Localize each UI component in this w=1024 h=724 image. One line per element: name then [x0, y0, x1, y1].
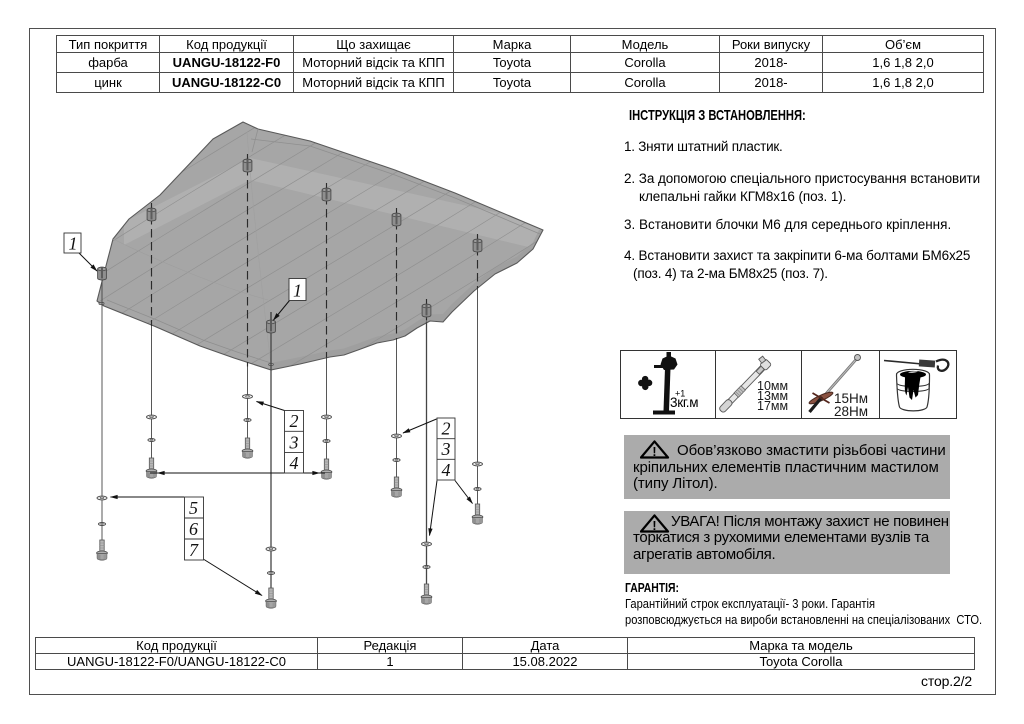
svg-text:3: 3 — [289, 432, 299, 452]
svg-text:+1: +1 — [675, 389, 685, 399]
svg-text:28Нм: 28Нм — [834, 404, 868, 419]
svg-text:4: 4 — [290, 453, 299, 473]
svg-text:5: 5 — [189, 498, 198, 518]
svg-text:6: 6 — [189, 519, 198, 539]
svg-text:1: 1 — [293, 281, 302, 301]
svg-text:2: 2 — [442, 419, 451, 439]
svg-text:1: 1 — [69, 234, 78, 254]
svg-text:17мм: 17мм — [757, 399, 788, 413]
svg-text:2: 2 — [290, 411, 299, 431]
svg-text:4: 4 — [442, 460, 451, 480]
svg-text:3: 3 — [441, 439, 451, 459]
svg-text:7: 7 — [189, 540, 199, 560]
